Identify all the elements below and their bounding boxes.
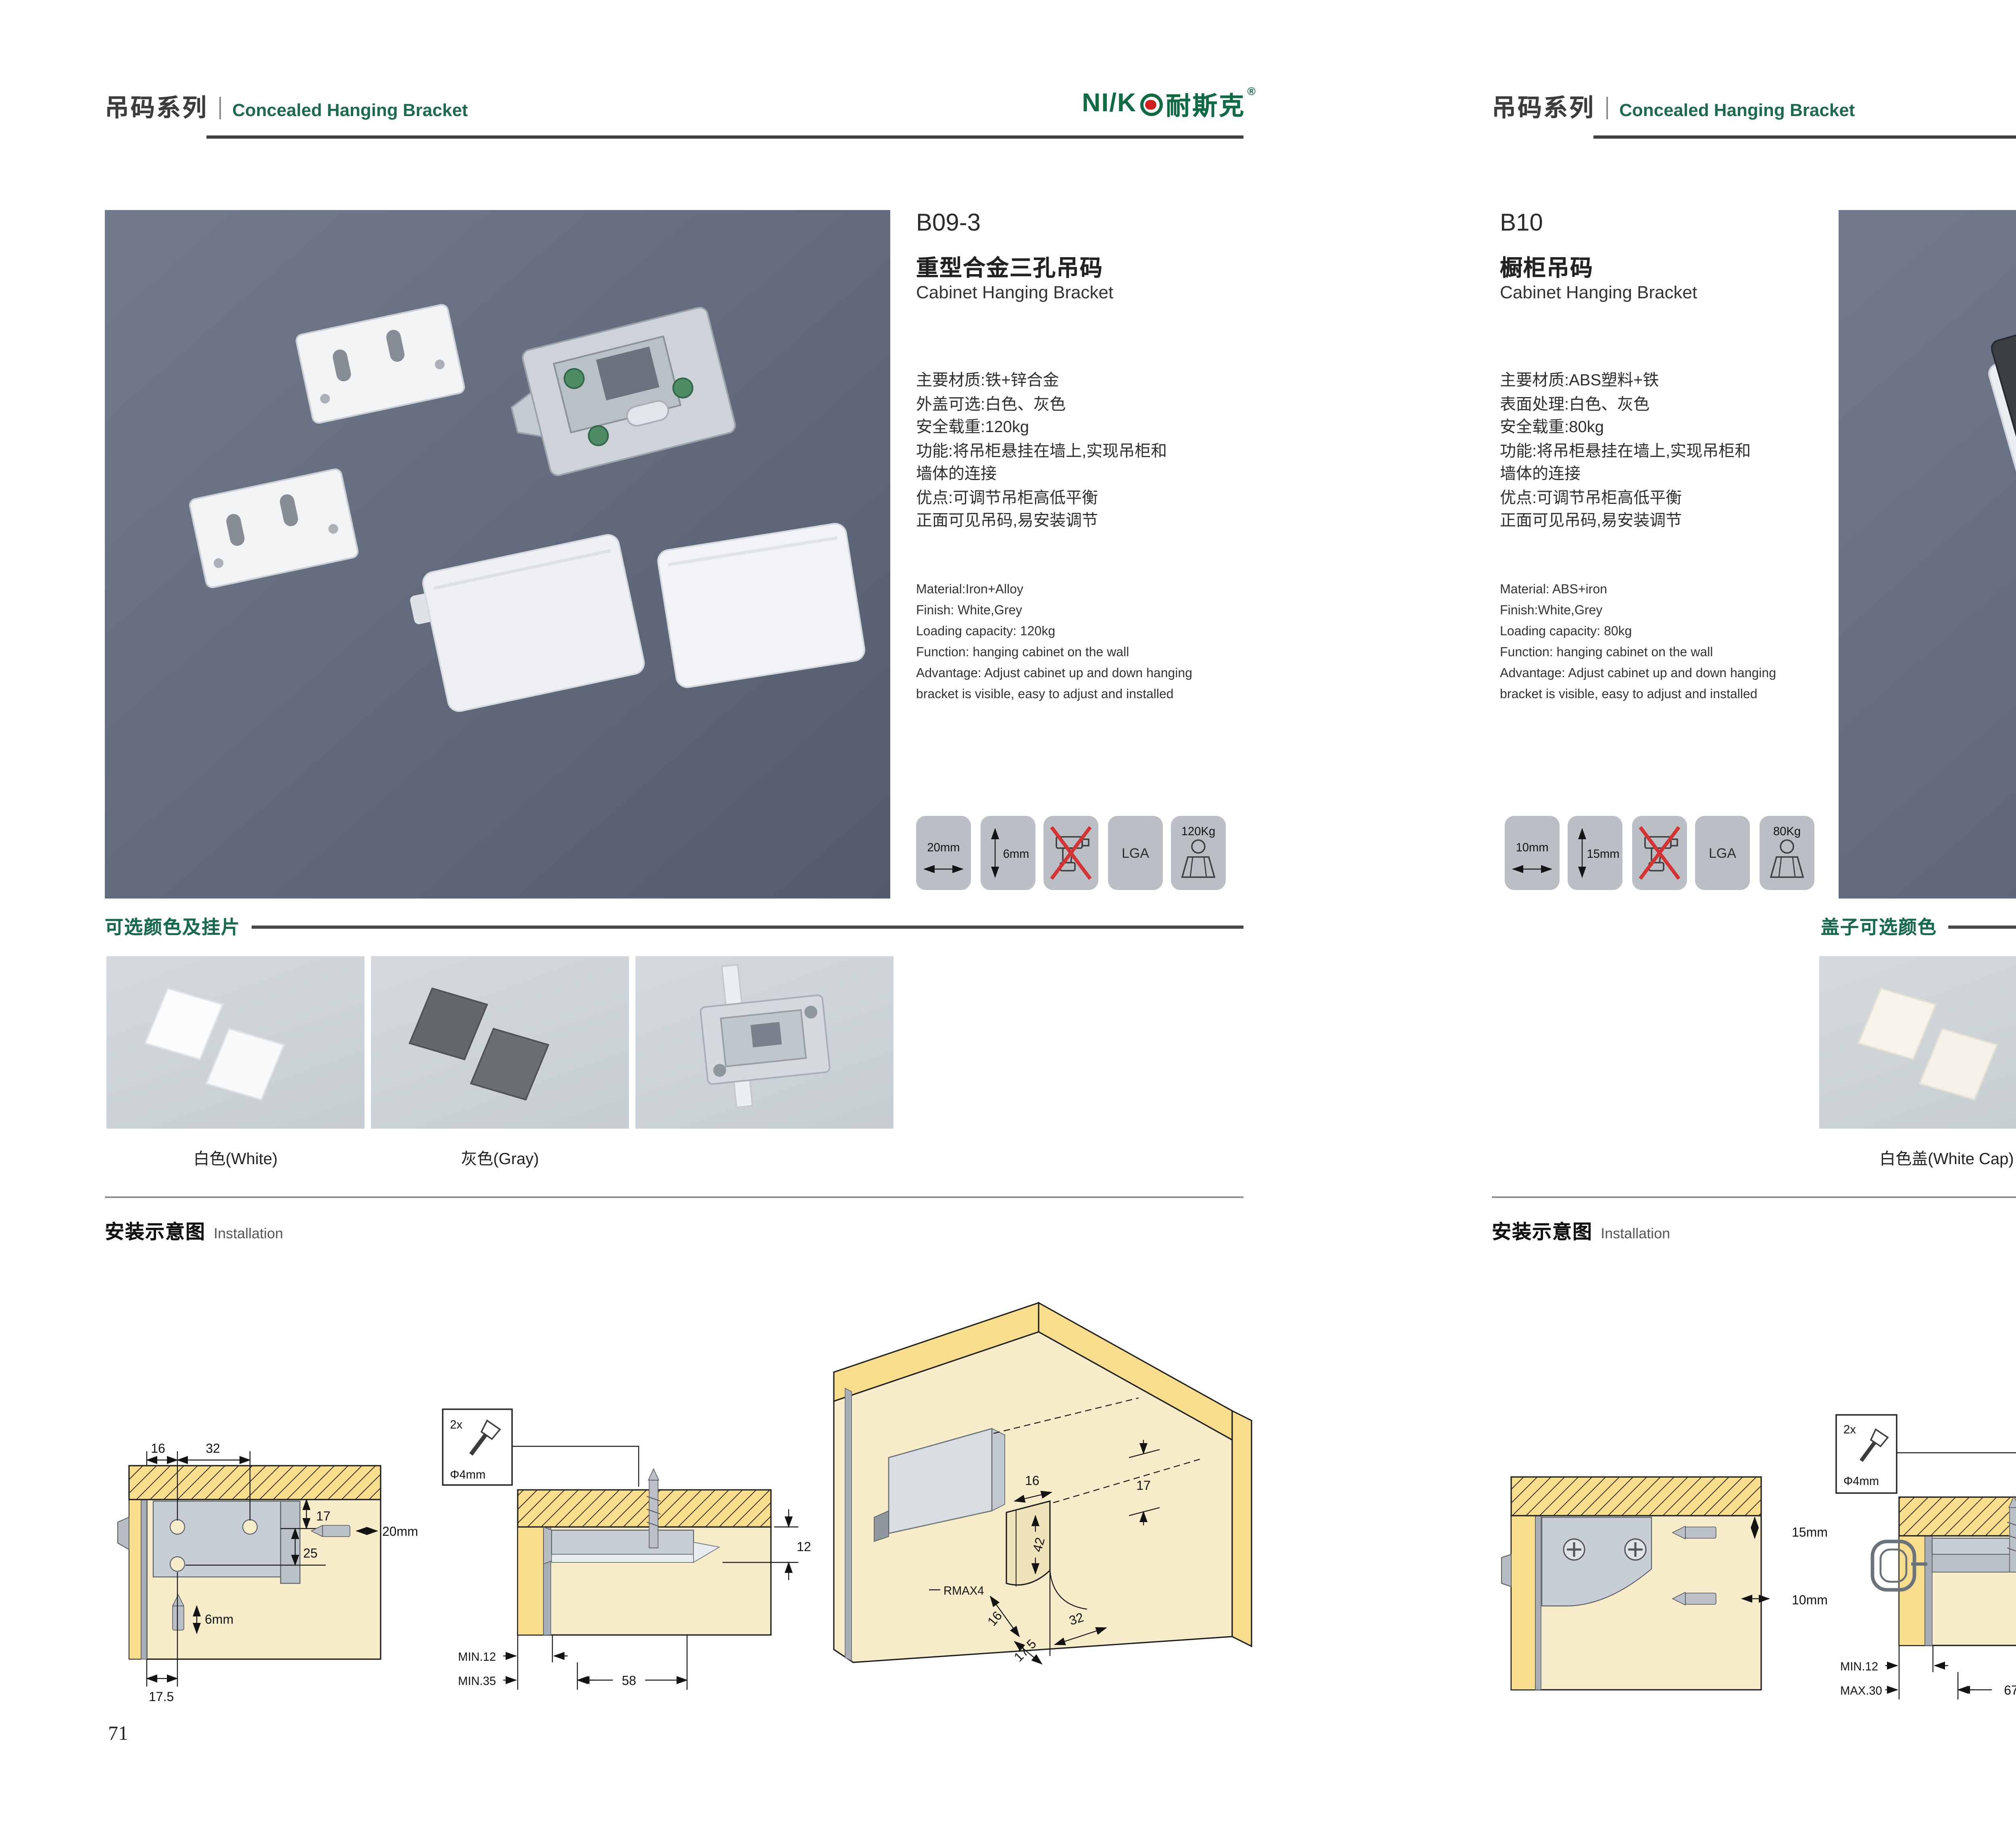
- section-rule: [252, 926, 1243, 928]
- lga-badge: LGA: [1107, 816, 1162, 890]
- dim-67: 67: [2003, 1683, 2016, 1697]
- installation-header: 安装示意图 Installation: [105, 1217, 283, 1245]
- dim-58: 58: [622, 1673, 636, 1688]
- installation-title-en: Installation: [214, 1225, 283, 1242]
- installation-diagram-3: 16 17 42 RMAX4 16 17.5 32: [826, 1298, 1277, 1669]
- product-specs-cn: 主要材质:铁+锌合金 外盖可选:白色、灰色 安全载重:120kg 功能:将吊柜悬…: [916, 371, 1255, 535]
- series-title-en: Concealed Hanging Bracket: [1619, 102, 1855, 121]
- lga-label: LGA: [1121, 846, 1148, 861]
- swatch-white-caps: [106, 956, 364, 1129]
- load-capacity-icon: 80Kg: [1759, 816, 1814, 890]
- feature-icons: 10mm 15mm LGA 80Kg: [1504, 816, 1814, 890]
- brand-logo: NI/K 耐斯克 ®: [1082, 87, 1256, 123]
- no-drill-icon: [1631, 816, 1686, 890]
- page-header: 吊码系列 Concealed Hanging Bracket: [1492, 90, 1855, 124]
- swatch-white-cap: [1819, 956, 2016, 1129]
- lga-badge: LGA: [1695, 816, 1750, 890]
- installation-diagram-2: 2x Φ4mm 12: [432, 1403, 827, 1725]
- dim-17b: 17: [1136, 1478, 1151, 1493]
- no-drill-icon: [1043, 816, 1098, 890]
- dim-min35: MIN.35: [458, 1675, 496, 1688]
- dim-rmax4: RMAX4: [943, 1585, 984, 1597]
- section-divider: [1492, 1196, 2016, 1198]
- series-title-cn: 吊码系列: [105, 90, 208, 124]
- product-specs-en: Material:Iron+Alloy Finish: White,Grey L…: [916, 580, 1255, 705]
- section-rule: [1948, 926, 2016, 928]
- thickness-value: 6mm: [1002, 848, 1029, 861]
- product-specs-cn: 主要材质:ABS塑料+铁 表面处理:白色、灰色 安全载重:80kg 功能:将吊柜…: [1500, 371, 1839, 535]
- header-rule: [1593, 135, 2016, 138]
- product-name-cn: 橱柜吊码: [1500, 252, 1593, 284]
- load-value: 120Kg: [1181, 825, 1215, 838]
- width-value: 10mm: [1515, 841, 1547, 854]
- panel-width-icon: 20mm: [916, 816, 971, 890]
- header-rule: [206, 135, 1243, 138]
- dim-25: 25: [303, 1546, 318, 1560]
- screw-qty: 2x: [1843, 1423, 1855, 1436]
- dim-12: 12: [797, 1539, 811, 1554]
- colors-section-title: 盖子可选颜色: [1821, 914, 1937, 940]
- installation-title-cn: 安装示意图: [1492, 1217, 1593, 1245]
- screw-diameter: Φ4mm: [450, 1468, 485, 1481]
- installation-header: 安装示意图 Installation: [1492, 1217, 1670, 1245]
- series-title-cn: 吊码系列: [1492, 90, 1595, 124]
- installation-title-cn: 安装示意图: [105, 1217, 206, 1245]
- series-title-en: Concealed Hanging Bracket: [232, 102, 468, 121]
- installation-title-en: Installation: [1601, 1225, 1670, 1242]
- catalog-page-left: 吊码系列 Concealed Hanging Bracket NI/K 耐斯克 …: [0, 0, 1352, 1847]
- dim-10mm: 10mm: [1791, 1593, 1827, 1607]
- swatch-label-white-cap: 白色盖(White Cap): [1879, 1145, 2014, 1169]
- page-header: 吊码系列 Concealed Hanging Bracket: [105, 90, 468, 124]
- load-value: 80Kg: [1772, 825, 1800, 838]
- logo-latin: NI/K: [1082, 90, 1137, 119]
- product-name-en: Cabinet Hanging Bracket: [1500, 284, 1697, 303]
- logo-cjk: 耐斯克: [1166, 87, 1245, 123]
- dim-slot-16: 16: [1025, 1473, 1039, 1488]
- registered-mark: ®: [1247, 87, 1256, 98]
- installation-diagram-1: 15mm 10mm: [1501, 1403, 1847, 1725]
- logo-ring-icon: [1140, 94, 1162, 116]
- installation-diagram-2: 2x Φ4mm 18: [1830, 1403, 2016, 1725]
- dim-max30: MAX.30: [1839, 1685, 1881, 1697]
- product-code: B10: [1500, 210, 1543, 237]
- screw-diameter: Φ4mm: [1843, 1475, 1878, 1488]
- product-name-cn: 重型合金三孔吊码: [916, 252, 1103, 284]
- dim-min12: MIN.12: [458, 1651, 496, 1664]
- section-divider: [105, 1196, 1243, 1198]
- lga-label: LGA: [1709, 846, 1736, 861]
- colors-section: 可选颜色及挂片: [105, 914, 1243, 940]
- dim-16: 16: [151, 1441, 165, 1456]
- panel-width-icon: 10mm: [1504, 816, 1559, 890]
- product-photo-b10: [1839, 210, 2016, 899]
- product-code: B09-3: [916, 210, 981, 237]
- dim-6mm: 6mm: [205, 1612, 233, 1627]
- dim-20mm: 20mm: [382, 1524, 418, 1539]
- width-value: 20mm: [927, 841, 960, 854]
- product-photo-b09-3: [105, 210, 890, 899]
- catalog-page-right: 吊码系列 Concealed Hanging Bracket NI/K 耐斯克 …: [1352, 0, 2016, 1847]
- product-specs-en: Material: ABS+iron Finish:White,Grey Loa…: [1500, 580, 1839, 705]
- dim-32: 32: [206, 1441, 220, 1456]
- load-capacity-icon: 120Kg: [1171, 816, 1226, 890]
- swatch-metal-bracket: [635, 956, 893, 1129]
- header-divider: [219, 96, 221, 119]
- panel-thickness-icon: 15mm: [1568, 816, 1622, 890]
- colors-section-title: 可选颜色及挂片: [105, 914, 240, 940]
- colors-section: 盖子可选颜色: [1821, 914, 2016, 940]
- swatch-label-gray: 灰色(Gray): [461, 1145, 539, 1169]
- dim-17-5: 17.5: [149, 1689, 174, 1704]
- swatch-label-white: 白色(White): [194, 1145, 278, 1169]
- dim-15mm: 15mm: [1791, 1525, 1827, 1539]
- dim-min12: MIN.12: [1839, 1660, 1877, 1673]
- screw-qty: 2x: [450, 1419, 462, 1431]
- feature-icons: 20mm 6mm LGA 120Kg: [916, 816, 1226, 890]
- dim-17: 17: [316, 1509, 331, 1523]
- panel-thickness-icon: 6mm: [980, 816, 1035, 890]
- thickness-value: 15mm: [1587, 848, 1619, 861]
- installation-diagram-1: 16 32 17 25 20mm 6mm 17.5: [113, 1290, 435, 1733]
- header-divider: [1606, 96, 1608, 119]
- swatch-gray-caps: [371, 956, 629, 1129]
- product-name-en: Cabinet Hanging Bracket: [916, 284, 1113, 303]
- page-number: 71: [108, 1722, 128, 1746]
